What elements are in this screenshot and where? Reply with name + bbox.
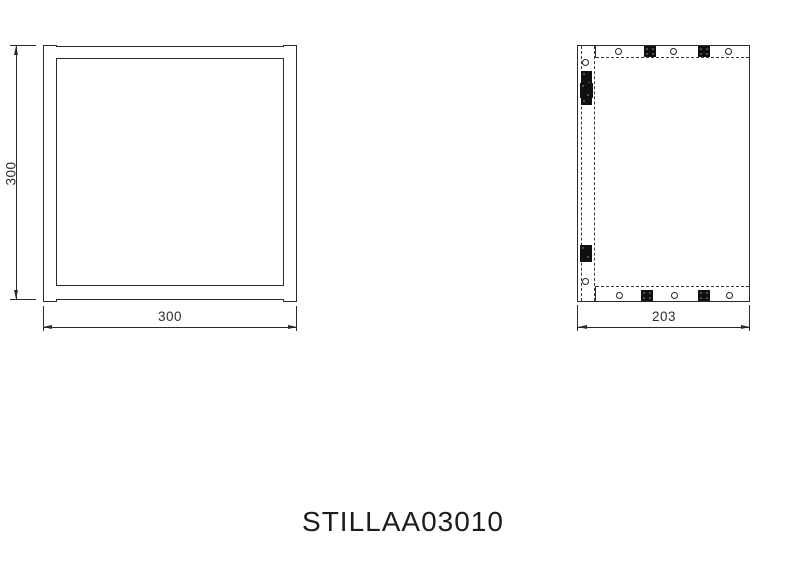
arrowhead-up-icon — [14, 46, 18, 55]
arrowhead-left-icon — [43, 325, 52, 329]
strip-boundary-bottom — [595, 286, 596, 301]
corner-fitting-icon — [698, 290, 710, 301]
dimension-line — [43, 327, 297, 328]
screw-hole-icon — [671, 292, 678, 299]
hidden-line-top-strip — [596, 57, 749, 58]
front-right-upright — [283, 45, 297, 302]
corner-fitting-icon — [641, 290, 653, 301]
front-left-upright — [43, 45, 57, 302]
arrowhead-right-icon — [288, 325, 297, 329]
corner-fitting-icon — [698, 46, 710, 57]
screw-hole-icon — [616, 292, 623, 299]
drawing-sheet: 300 300 — [0, 0, 809, 563]
front-height-dim-label: 300 — [4, 156, 19, 192]
strip-boundary-top — [595, 46, 596, 58]
screw-hole-icon — [582, 278, 589, 285]
hidden-line-left-strip — [594, 46, 595, 301]
arrowhead-right-icon — [741, 325, 750, 329]
front-width-dim-label: 300 — [43, 309, 297, 324]
extension-line — [10, 299, 36, 300]
screw-hole-icon — [670, 48, 677, 55]
side-panel-outline — [577, 45, 750, 302]
part-number-title: STILLAA03010 — [0, 506, 806, 538]
dimension-line — [578, 327, 750, 328]
arrowhead-down-icon — [14, 290, 18, 299]
side-width-dim-label: 203 — [578, 309, 750, 324]
front-top-rail — [56, 46, 284, 59]
arrowhead-left-icon — [578, 325, 587, 329]
screw-hole-icon — [582, 59, 589, 66]
screw-hole-icon — [725, 48, 732, 55]
hinge-fitting-icon — [580, 245, 592, 262]
screw-hole-icon — [726, 292, 733, 299]
screw-hole-icon — [615, 48, 622, 55]
corner-fitting-icon — [644, 46, 656, 57]
hidden-line-bottom-strip — [596, 286, 749, 287]
front-bottom-rail — [56, 285, 284, 300]
